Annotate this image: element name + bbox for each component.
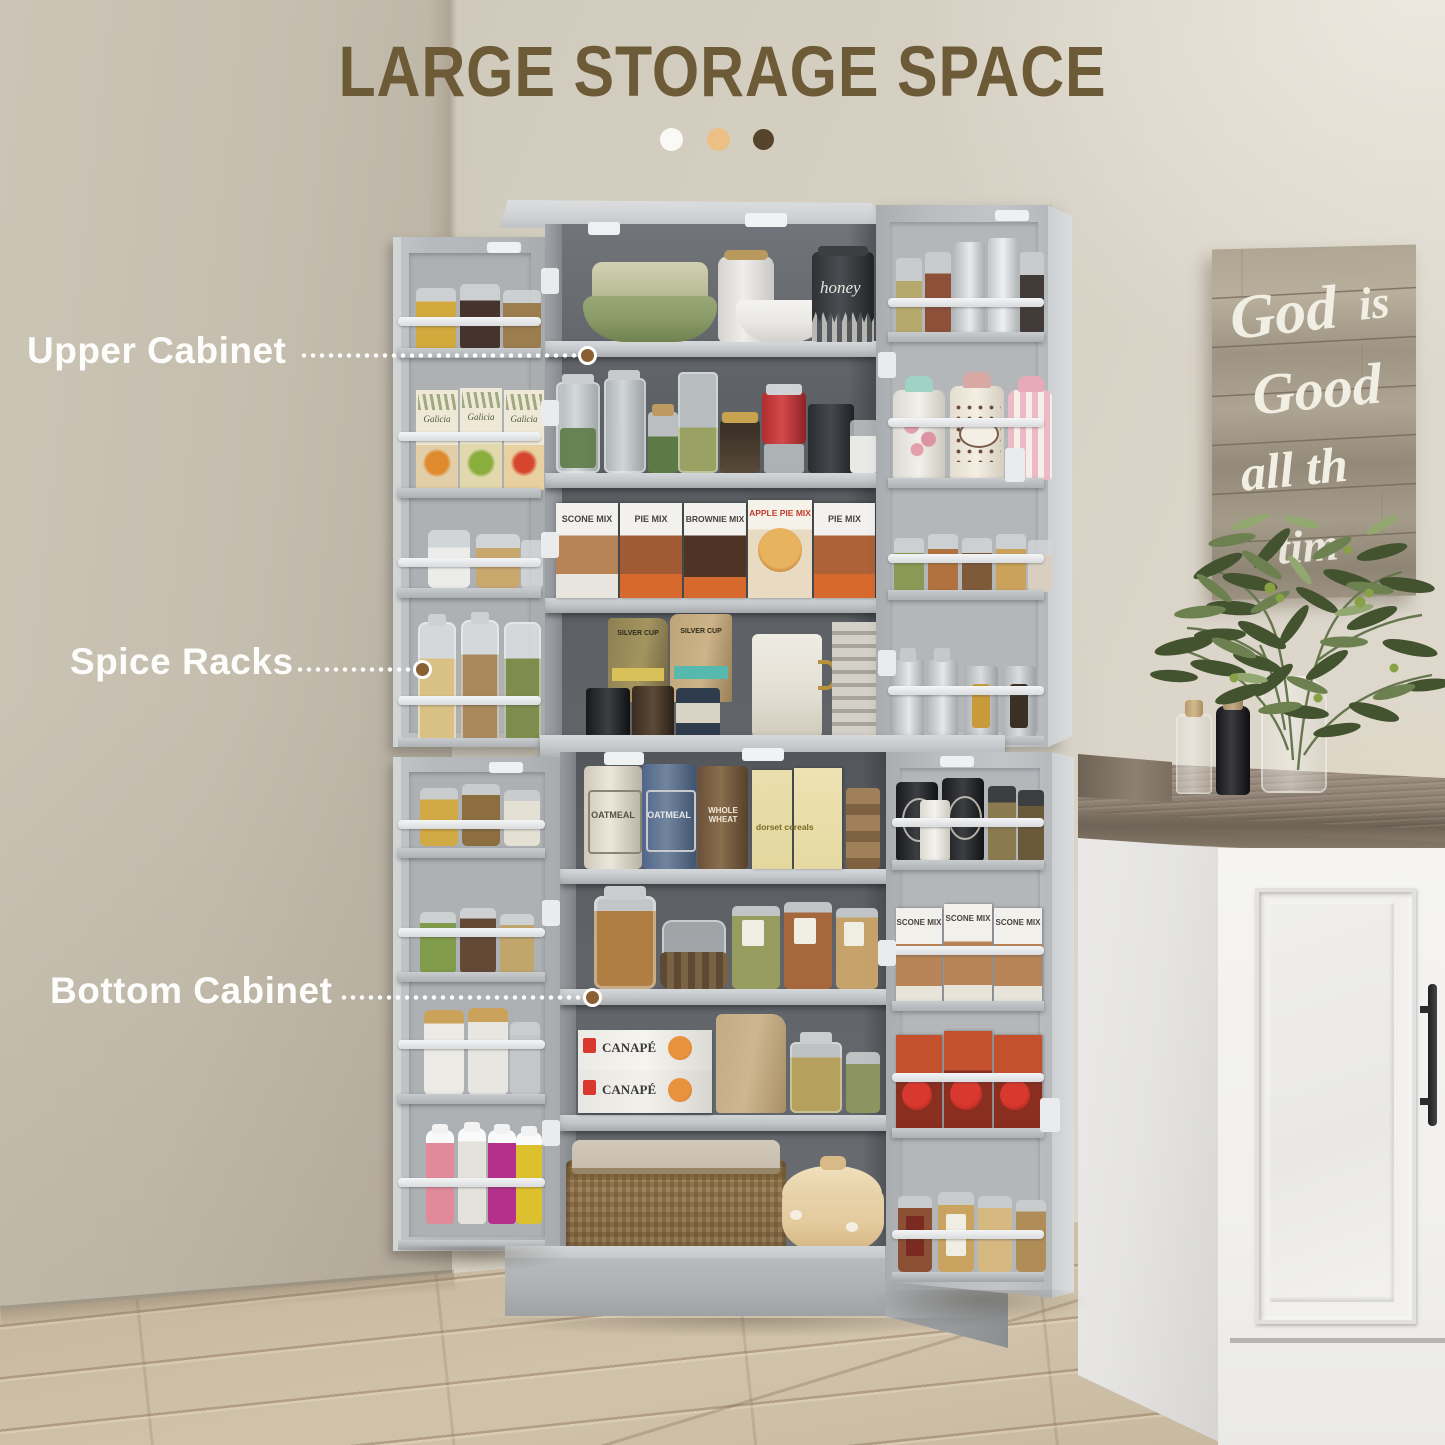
svg-text:Good: Good [1250,350,1384,427]
svg-text:is: is [1356,276,1391,330]
svg-text:God: God [1227,273,1340,353]
